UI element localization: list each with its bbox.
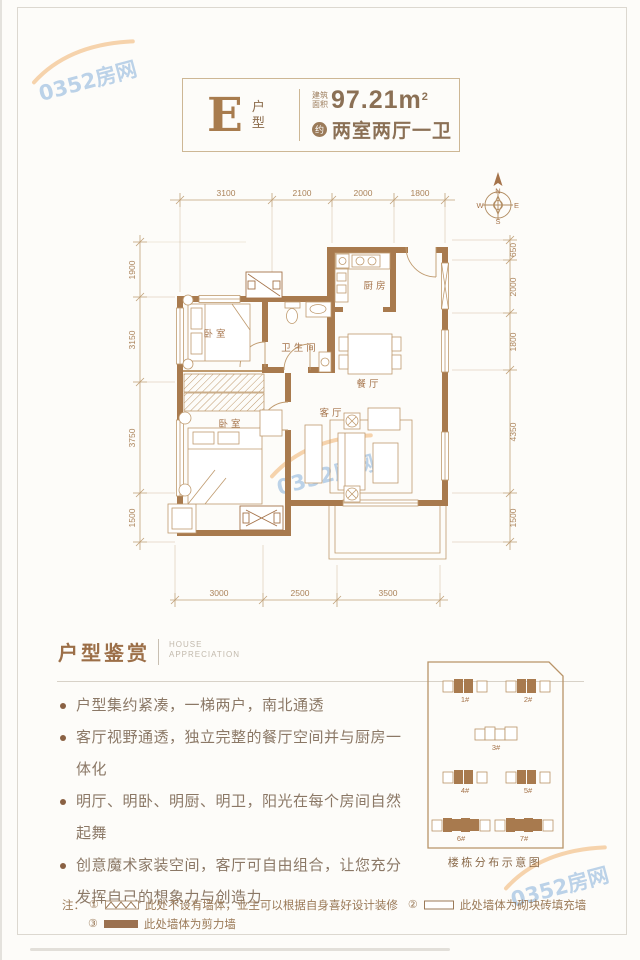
dim-bottom-1: 3000 (210, 588, 229, 598)
compass-s: S (495, 217, 500, 226)
dim-left-3: 3750 (127, 428, 137, 447)
dim-bottom-2: 2500 (291, 588, 310, 598)
compass-w: W (476, 201, 484, 210)
dim-right-4: 4350 (508, 422, 518, 441)
scan-edge-bottom (30, 948, 450, 951)
feature-list: 户型集约紧凑，一梯两户，南北通透 客厅视野通透，独立完整的餐厅空间并与厨房一体化… (60, 690, 416, 914)
divider (158, 639, 159, 665)
area-label: 建筑 面积 (312, 91, 328, 109)
building-6 (432, 818, 490, 832)
room-label-dining: 餐厅 (356, 378, 381, 390)
appreciation-subtitle: HOUSE APPRECIATION (169, 637, 240, 660)
dim-top-1: 3100 (217, 188, 236, 198)
dim-right-3: 1800 (508, 332, 518, 351)
dim-top-3: 2000 (354, 188, 373, 198)
block-infill-outline-icon (424, 900, 454, 910)
site-plan-caption: 楼栋分布示意图 (448, 855, 543, 869)
building-label-6: 6# (457, 834, 466, 843)
floor-plan: 3100 2100 2000 1800 1900 3150 3750 1500 … (95, 165, 535, 620)
feature-text: 客厅视野通透，独立完整的餐厅空间并与厨房一体化 (76, 722, 416, 786)
unit-type-right: 建筑 面积 97.21m 2 约 两室两厅一卫 (300, 87, 459, 143)
room-label-bathroom: 卫生间 (281, 342, 319, 354)
unit-type-letter: E (207, 92, 243, 139)
list-item: 户型集约紧凑，一梯两户，南北通透 (60, 690, 416, 722)
legend-notes: 注： ① 此处不设有墙体，业主可以根据自身喜好设计装修 ② 此处墙体为砌块砖填充… (62, 895, 582, 933)
feature-text: 户型集约紧凑，一梯两户，南北通透 (76, 690, 324, 722)
appreciation-header: 户型鉴赏 HOUSE APPRECIATION (58, 637, 240, 666)
dim-bottom-3: 3500 (379, 588, 398, 598)
unit-type-box: E 户型 建筑 面积 97.21m 2 约 两室两厅一卫 (182, 78, 460, 152)
building-2 (506, 679, 550, 693)
room-label-bedroom1: 卧室 (203, 328, 228, 340)
note-num-1: ① (89, 898, 99, 911)
scan-edge (0, 0, 2, 960)
note-text-3: 此处墙体为剪力墙 (144, 916, 236, 932)
dim-top-2: 2100 (293, 188, 312, 198)
compass-icon (483, 172, 513, 220)
building-3 (475, 727, 517, 740)
list-item: 客厅视野通透，独立完整的餐厅空间并与厨房一体化 (60, 722, 416, 786)
dim-left-1: 1900 (127, 260, 137, 279)
bullet-dot (60, 703, 66, 709)
unit-type-left: E 户型 (183, 92, 299, 139)
building-5 (506, 770, 550, 784)
room-label-bedroom2: 卧室 (218, 418, 243, 430)
dim-top-4: 1800 (411, 188, 430, 198)
bullet-dot (60, 799, 66, 805)
appreciation-subtitle-line1: HOUSE (169, 640, 240, 650)
building-7 (495, 818, 553, 832)
unit-type-label: 户型 (252, 99, 267, 131)
area-value: 97.21m (331, 87, 422, 113)
building-1 (443, 679, 487, 693)
area-exponent: 2 (422, 91, 428, 103)
feature-text: 明厅、明卧、明厨、明卫，阳光在每个房间自然起舞 (76, 786, 416, 850)
note-num-2: ② (408, 898, 418, 911)
appreciation-subtitle-line2: APPRECIATION (169, 650, 240, 660)
note-num-3: ③ (88, 917, 98, 930)
room-label-kitchen: 厨房 (363, 280, 388, 292)
room-label-living: 客厅 (319, 407, 344, 419)
appreciation-title: 户型鉴赏 (58, 637, 150, 666)
compass-n: N (495, 187, 500, 196)
no-wall-hatch-icon (105, 900, 139, 910)
dim-left-2: 3150 (127, 330, 137, 349)
building-label-2: 2# (524, 695, 533, 704)
compass-e: E (514, 201, 519, 210)
building-label-4: 4# (461, 786, 470, 795)
wardrobe (184, 374, 264, 411)
area-label-line1: 建筑 (312, 91, 328, 100)
dim-left-4: 1500 (127, 508, 137, 527)
building-label-5: 5# (524, 786, 533, 795)
approx-badge: 约 (312, 122, 327, 137)
building-label-7: 7# (520, 834, 529, 843)
dim-right-5: 1500 (508, 508, 518, 527)
dim-right-2: 2000 (508, 277, 518, 296)
note-prefix: 注： (62, 897, 85, 913)
building-label-3: 3# (492, 743, 501, 752)
dim-right-1: 650 (508, 243, 518, 257)
area-label-line2: 面积 (312, 100, 328, 109)
bullet-dot (60, 863, 66, 869)
bullet-dot (60, 735, 66, 741)
shear-wall-solid-icon (104, 919, 138, 929)
brochure-page: 0352房网 0352房网 0352房网 E 户型 建筑 面积 97.21m (0, 0, 640, 960)
site-plan: 1# 2# 3# 4# 5# 6# 7# 楼栋分布示意图 (420, 650, 595, 880)
building-4 (443, 770, 487, 784)
note-text-2: 此处墙体为砌块砖填充墙 (460, 897, 587, 913)
note-text-1: 此处不设有墙体，业主可以根据自身喜好设计装修 (145, 897, 398, 913)
building-label-1: 1# (461, 695, 470, 704)
room-layout-text: 两室两厅一卫 (332, 116, 452, 143)
list-item: 明厅、明卧、明厨、明卫，阳光在每个房间自然起舞 (60, 786, 416, 850)
note-line-2: ③ 此处墙体为剪力墙 (84, 914, 582, 933)
note-line-1: 注： ① 此处不设有墙体，业主可以根据自身喜好设计装修 ② 此处墙体为砌块砖填充… (62, 895, 582, 914)
